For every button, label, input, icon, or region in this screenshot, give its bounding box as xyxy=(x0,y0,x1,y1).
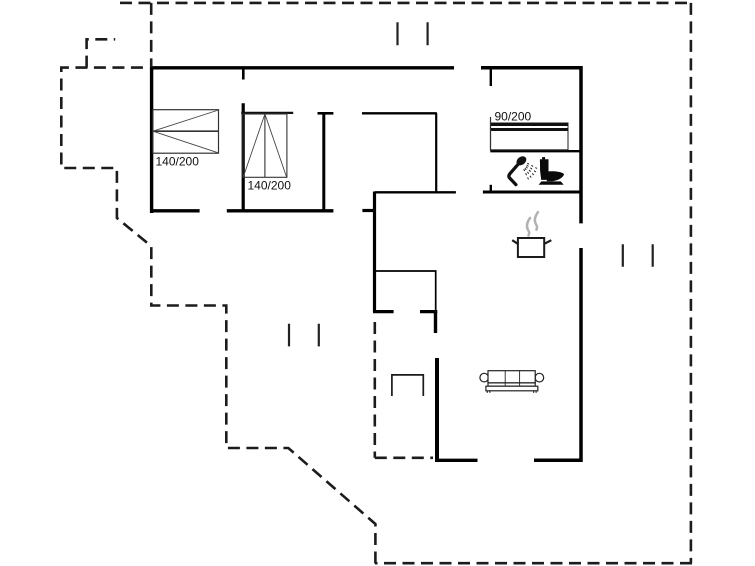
svg-text:140/200: 140/200 xyxy=(248,179,292,193)
svg-text:90/200: 90/200 xyxy=(495,110,532,124)
svg-text:140/200: 140/200 xyxy=(156,155,200,169)
